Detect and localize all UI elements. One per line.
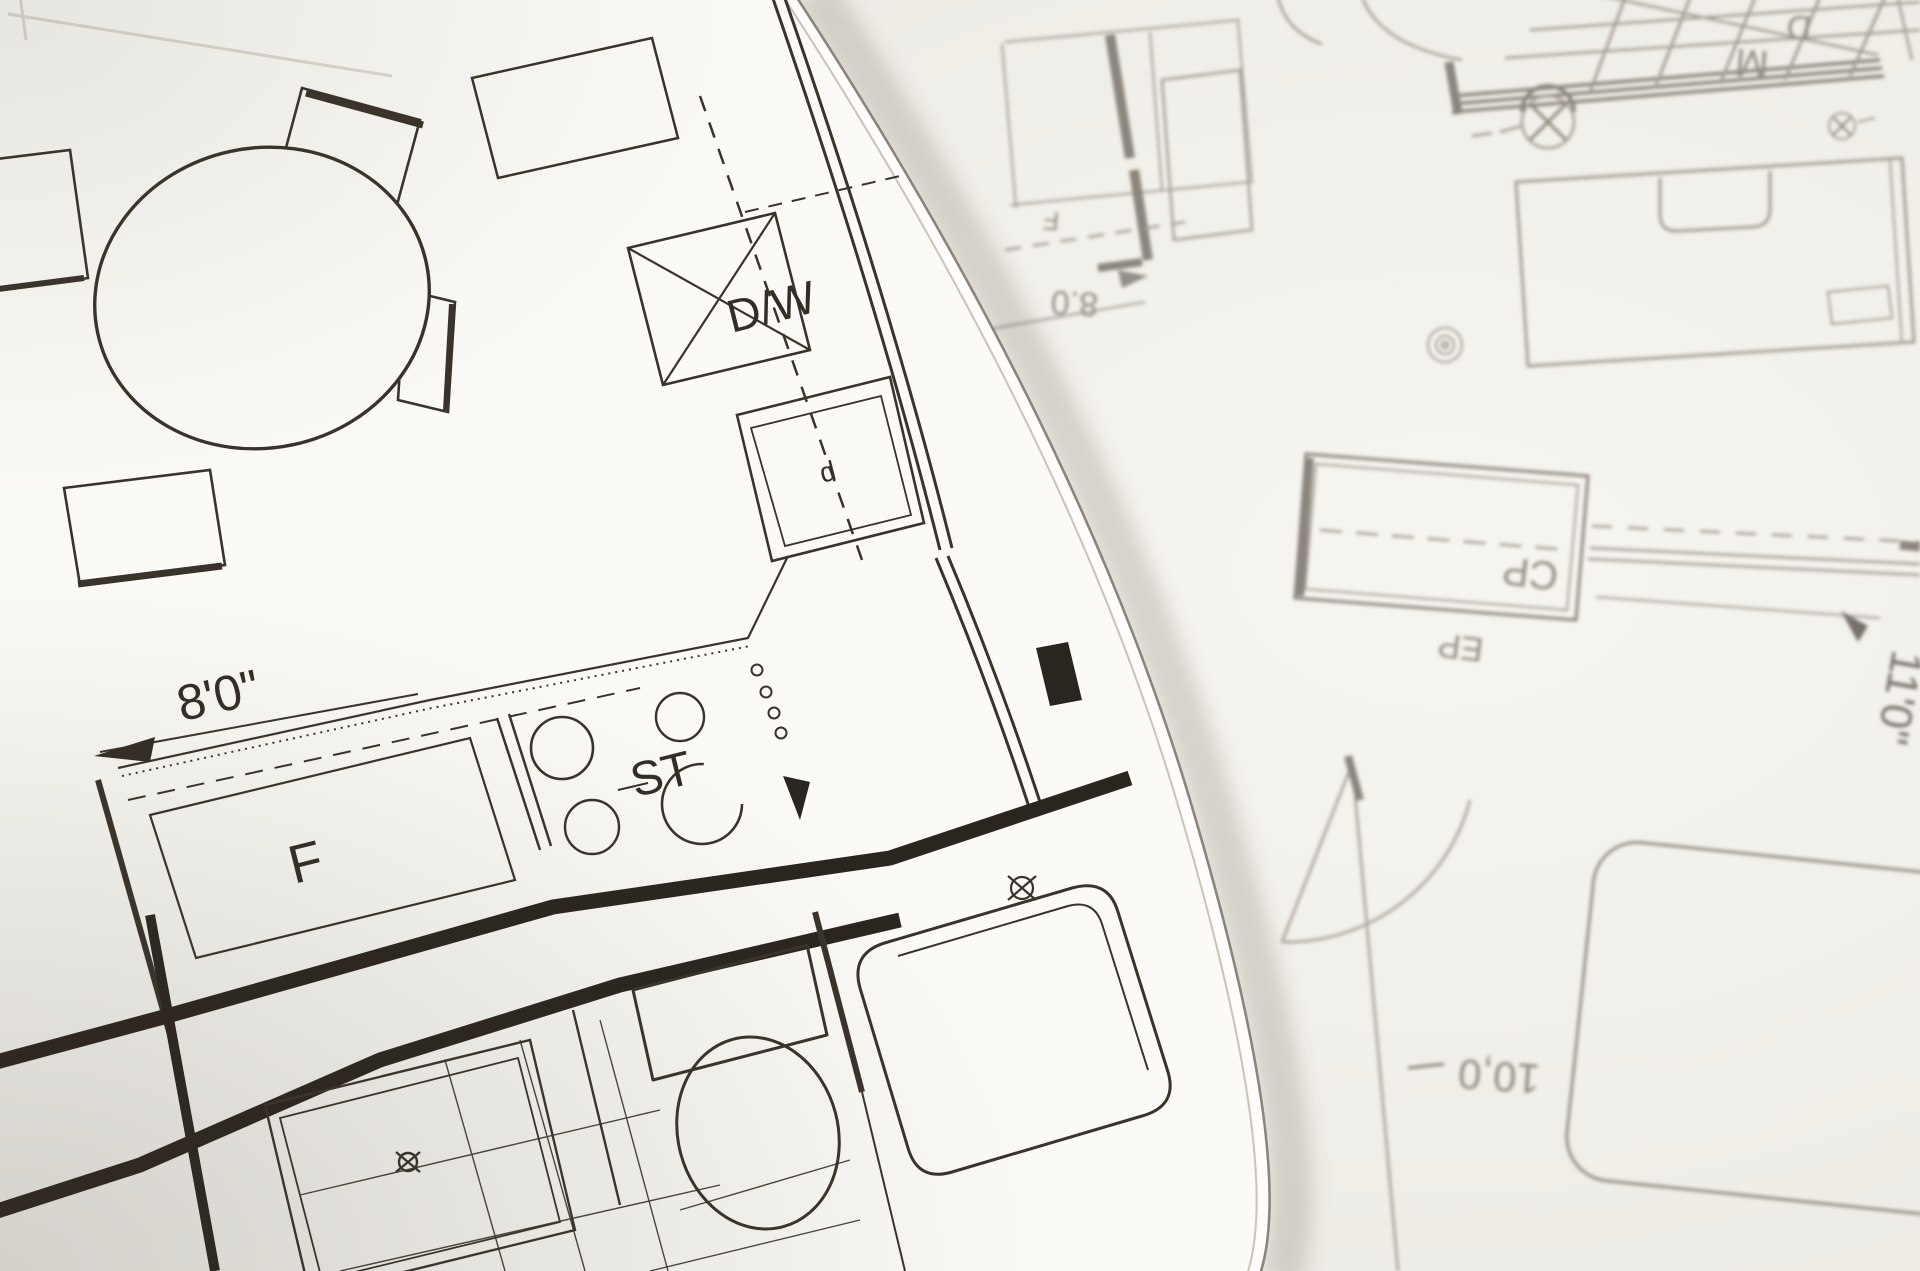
blueprint-photo: 8.0 F CP EP xyxy=(0,0,1920,1271)
vignette-top-left xyxy=(0,0,1920,1271)
photo-canvas: 8.0 F CP EP xyxy=(0,0,1920,1271)
